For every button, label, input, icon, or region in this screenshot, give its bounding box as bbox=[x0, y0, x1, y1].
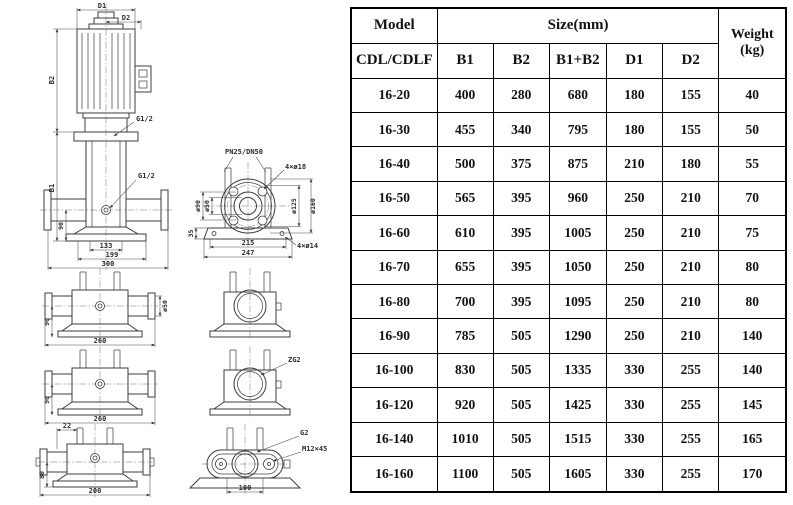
table-cell: 16-40 bbox=[351, 147, 437, 181]
bottom-port-view: 22 80 200 bbox=[36, 422, 154, 498]
table-cell: 16-20 bbox=[351, 78, 437, 112]
table-cell: 155 bbox=[662, 78, 719, 112]
table-cell: 80 bbox=[719, 250, 786, 284]
table-cell: 395 bbox=[493, 216, 549, 250]
table-cell: 1100 bbox=[437, 456, 493, 492]
dia-label-bore: ø50 bbox=[203, 200, 211, 212]
table-cell: 1605 bbox=[549, 456, 606, 492]
table-cell: 505 bbox=[493, 319, 549, 353]
table-cell: 210 bbox=[662, 216, 719, 250]
table-cell: 255 bbox=[662, 388, 719, 422]
datasheet-page: D1 D2 B2 B1 90 133 bbox=[0, 0, 793, 500]
table-cell: 1095 bbox=[549, 284, 606, 318]
table-cell: 145 bbox=[719, 388, 786, 422]
spec-table-body: 16-204002806801801554016-304553407951801… bbox=[351, 78, 786, 492]
table-cell: 395 bbox=[493, 284, 549, 318]
dim-label-247: 247 bbox=[242, 249, 255, 257]
dim-label-300: 300 bbox=[102, 260, 115, 268]
table-cell: 250 bbox=[606, 216, 662, 250]
table-cell: 250 bbox=[606, 284, 662, 318]
table-cell: 330 bbox=[606, 353, 662, 387]
table-cell: 565 bbox=[437, 181, 493, 215]
table-cell: 165 bbox=[719, 422, 786, 456]
table-cell: 16-80 bbox=[351, 284, 437, 318]
table-cell: 1050 bbox=[549, 250, 606, 284]
table-cell: 960 bbox=[549, 181, 606, 215]
table-cell: 55 bbox=[719, 147, 786, 181]
table-cell: 610 bbox=[437, 216, 493, 250]
dia-label-hub: ø90 bbox=[194, 200, 202, 212]
table-cell: 16-120 bbox=[351, 388, 437, 422]
table-row: 16-1008305051335330255140 bbox=[351, 353, 786, 387]
table-cell: 16-70 bbox=[351, 250, 437, 284]
table-cell: 155 bbox=[662, 112, 719, 146]
table-cell: 180 bbox=[662, 147, 719, 181]
table-cell: 655 bbox=[437, 250, 493, 284]
dia-label-port-s1: ø50 bbox=[161, 300, 169, 312]
header-weight-line1: Weight bbox=[719, 27, 785, 43]
table-cell: 250 bbox=[606, 319, 662, 353]
table-cell: 16-160 bbox=[351, 456, 437, 492]
table-cell: 1335 bbox=[549, 353, 606, 387]
table-cell: 830 bbox=[437, 353, 493, 387]
table-cell: 395 bbox=[493, 250, 549, 284]
table-cell: 75 bbox=[719, 216, 786, 250]
dim-label-260-s1: 260 bbox=[94, 337, 107, 345]
dim-label-200: 200 bbox=[89, 487, 102, 495]
table-row: 16-70655395105025021080 bbox=[351, 250, 786, 284]
spec-table-pane: Model Size(mm) Weight (kg) CDL/CDLF B1 B… bbox=[348, 0, 793, 500]
table-cell: 210 bbox=[662, 284, 719, 318]
flange-title: PN25/DN50 bbox=[225, 148, 263, 156]
table-cell: 140 bbox=[719, 353, 786, 387]
header-col-b1b2: B1+B2 bbox=[549, 43, 606, 78]
table-cell: 785 bbox=[437, 319, 493, 353]
table-row: 16-14010105051515330255165 bbox=[351, 422, 786, 456]
header-model-sub: CDL/CDLF bbox=[351, 43, 437, 78]
table-cell: 505 bbox=[493, 388, 549, 422]
header-weight: Weight (kg) bbox=[719, 8, 786, 78]
table-cell: 395 bbox=[493, 181, 549, 215]
dim-label-260-s2: 260 bbox=[94, 415, 107, 423]
table-cell: 505 bbox=[493, 353, 549, 387]
table-row: 16-5056539596025021070 bbox=[351, 181, 786, 215]
table-cell: 80 bbox=[719, 284, 786, 318]
side-port-view-1 bbox=[210, 268, 290, 340]
dim-label-133: 133 bbox=[100, 242, 113, 250]
header-col-b2: B2 bbox=[493, 43, 549, 78]
dia-label-outer: ø160 bbox=[309, 198, 317, 214]
table-cell: 330 bbox=[606, 388, 662, 422]
main-front-view: D1 D2 B2 B1 90 133 bbox=[40, 2, 172, 270]
dim-label-80: 80 bbox=[38, 471, 46, 479]
table-cell: 210 bbox=[662, 181, 719, 215]
dim-label-d2: D2 bbox=[122, 14, 130, 22]
table-cell: 255 bbox=[662, 422, 719, 456]
pump-drawing-pane: D1 D2 B2 B1 90 133 bbox=[0, 0, 348, 500]
table-cell: 170 bbox=[719, 456, 786, 492]
table-cell: 210 bbox=[606, 147, 662, 181]
table-cell: 1005 bbox=[549, 216, 606, 250]
table-cell: 140 bbox=[719, 319, 786, 353]
table-cell: 375 bbox=[493, 147, 549, 181]
table-cell: 40 bbox=[719, 78, 786, 112]
table-cell: 455 bbox=[437, 112, 493, 146]
table-row: 16-4050037587521018055 bbox=[351, 147, 786, 181]
header-model: Model bbox=[351, 8, 437, 43]
header-weight-line2: (kg) bbox=[719, 43, 785, 59]
table-cell: 505 bbox=[493, 422, 549, 456]
suction-view-2: 90 260 bbox=[42, 346, 158, 425]
table-cell: 330 bbox=[606, 422, 662, 456]
table-cell: 505 bbox=[493, 456, 549, 492]
bolt-label-4x14: 4×ø14 bbox=[297, 242, 318, 250]
dim-label-215: 215 bbox=[242, 239, 255, 247]
table-cell: 1425 bbox=[549, 388, 606, 422]
header-col-b1: B1 bbox=[437, 43, 493, 78]
table-cell: 255 bbox=[662, 456, 719, 492]
table-row: 16-1209205051425330255145 bbox=[351, 388, 786, 422]
suction-view-1: 90 260 ø50 bbox=[42, 268, 169, 347]
table-cell: 875 bbox=[549, 147, 606, 181]
table-cell: 400 bbox=[437, 78, 493, 112]
dim-label-90: 90 bbox=[57, 222, 65, 230]
table-cell: 500 bbox=[437, 147, 493, 181]
bolt-label-m12x45: M12×45 bbox=[302, 445, 327, 453]
table-cell: 700 bbox=[437, 284, 493, 318]
table-row: 16-907855051290250210140 bbox=[351, 319, 786, 353]
table-row: 16-16011005051605330255170 bbox=[351, 456, 786, 492]
table-cell: 1290 bbox=[549, 319, 606, 353]
table-cell: 795 bbox=[549, 112, 606, 146]
table-cell: 70 bbox=[719, 181, 786, 215]
dim-label-90-s2: 90 bbox=[43, 396, 51, 404]
side-port-view-zg2: ZG2 bbox=[210, 346, 301, 418]
port-label-g12-mid: G1/2 bbox=[138, 172, 155, 180]
flange-detail-view: PN25/DN50 4×ø18 ø90 ø50 ø125 bbox=[187, 148, 318, 259]
table-cell: 680 bbox=[549, 78, 606, 112]
dim-label-22: 22 bbox=[63, 422, 71, 430]
table-cell: 920 bbox=[437, 388, 493, 422]
table-cell: 1010 bbox=[437, 422, 493, 456]
table-cell: 250 bbox=[606, 181, 662, 215]
oval-flange-view: G2 M12×45 100 bbox=[190, 424, 327, 496]
table-cell: 250 bbox=[606, 250, 662, 284]
table-cell: 16-90 bbox=[351, 319, 437, 353]
table-cell: 16-60 bbox=[351, 216, 437, 250]
header-size-group: Size(mm) bbox=[437, 8, 719, 43]
port-label-g2: G2 bbox=[300, 429, 308, 437]
dim-label-b2: B2 bbox=[48, 76, 56, 84]
table-cell: 180 bbox=[606, 78, 662, 112]
dim-label-199: 199 bbox=[106, 251, 119, 259]
dim-label-35: 35 bbox=[187, 230, 195, 238]
table-row: 16-60610395100525021075 bbox=[351, 216, 786, 250]
header-col-d1: D1 bbox=[606, 43, 662, 78]
table-cell: 16-30 bbox=[351, 112, 437, 146]
port-label-zg2: ZG2 bbox=[288, 356, 301, 364]
dia-label-bolt-circle: ø125 bbox=[290, 198, 298, 214]
table-cell: 255 bbox=[662, 353, 719, 387]
spec-table: Model Size(mm) Weight (kg) CDL/CDLF B1 B… bbox=[350, 7, 787, 493]
table-cell: 50 bbox=[719, 112, 786, 146]
bolt-label-4x18: 4×ø18 bbox=[285, 163, 306, 171]
table-row: 16-80700395109525021080 bbox=[351, 284, 786, 318]
pump-technical-drawing: D1 D2 B2 B1 90 133 bbox=[0, 0, 348, 500]
table-cell: 16-140 bbox=[351, 422, 437, 456]
table-cell: 280 bbox=[493, 78, 549, 112]
table-cell: 16-100 bbox=[351, 353, 437, 387]
dim-label-b1: B1 bbox=[48, 184, 56, 192]
table-cell: 330 bbox=[606, 456, 662, 492]
header-col-d2: D2 bbox=[662, 43, 719, 78]
table-row: 16-2040028068018015540 bbox=[351, 78, 786, 112]
table-cell: 1515 bbox=[549, 422, 606, 456]
dim-label-d1: D1 bbox=[98, 2, 106, 10]
table-cell: 210 bbox=[662, 250, 719, 284]
table-cell: 340 bbox=[493, 112, 549, 146]
dim-label-100: 100 bbox=[239, 484, 252, 492]
table-cell: 180 bbox=[606, 112, 662, 146]
table-cell: 16-50 bbox=[351, 181, 437, 215]
table-row: 16-3045534079518015550 bbox=[351, 112, 786, 146]
dim-label-90-s1: 90 bbox=[43, 318, 51, 326]
port-label-g12-top: G1/2 bbox=[136, 115, 153, 123]
table-cell: 210 bbox=[662, 319, 719, 353]
